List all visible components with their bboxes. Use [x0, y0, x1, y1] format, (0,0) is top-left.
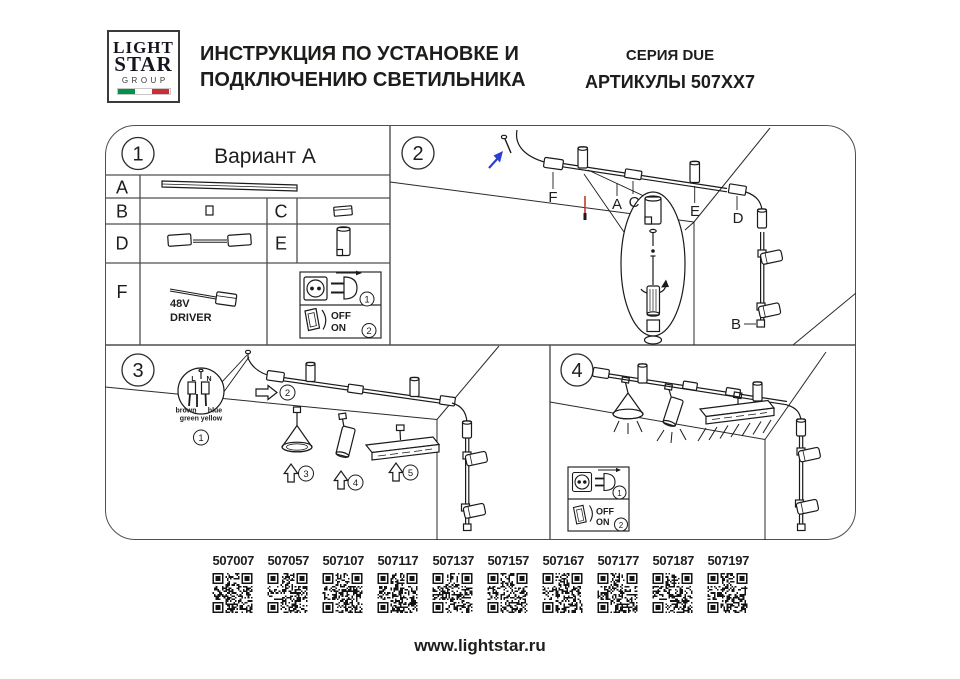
article-column: 507157: [488, 553, 528, 613]
qr-code: [378, 573, 418, 613]
title-line-1: ИНСТРУКЦИЯ ПО УСТАНОВКЕ И: [200, 41, 526, 67]
diagram-label-c: C: [628, 194, 639, 211]
part-label-e: E: [274, 233, 286, 253]
ceiling-hook: [245, 350, 250, 359]
article-number: 507167: [543, 553, 583, 568]
part-label-c: C: [274, 201, 287, 221]
driver-voltage: 48V: [170, 298, 190, 310]
ceiling-mount-1: [578, 146, 588, 167]
panel-3-wiring-diagram: 3: [105, 346, 499, 540]
article-number: 507117: [378, 553, 418, 568]
wire-label-blue: blue: [207, 407, 221, 414]
qr-code: [653, 573, 693, 613]
mid-connector: [624, 168, 642, 179]
website-url: www.lightstar.ru: [0, 636, 960, 656]
light-rays: [657, 429, 686, 443]
right-mount-cylinder: [757, 208, 766, 227]
instruction-sheet: LIGHT STAR GROUP ИНСТРУКЦИЯ ПО УСТАНОВКЕ…: [0, 0, 960, 679]
end-cap: [757, 320, 765, 327]
power-steps-box: 1 OFF ON 2: [300, 270, 381, 337]
article-column: 507167: [543, 553, 583, 613]
qr-code: [543, 573, 583, 613]
ceiling-mount-2: [753, 381, 762, 400]
track-bar-icon: [162, 181, 297, 191]
article-number: 507197: [708, 553, 748, 568]
panel-3-number: 3: [132, 360, 143, 382]
title-line-2: ПОДКЛЮЧЕНИЮ СВЕТИЛЬНИКА: [200, 67, 526, 93]
part-label-b: B: [115, 201, 127, 221]
switch-off-label: OFF: [596, 506, 614, 516]
step-3: 3: [303, 469, 308, 480]
page-title: ИНСТРУКЦИЯ ПО УСТАНОВКЕ И ПОДКЛЮЧЕНИЮ СВ…: [200, 41, 526, 93]
right-mount-cylinder: [462, 420, 471, 437]
panel-2-number: 2: [412, 143, 423, 165]
step-2: 2: [284, 388, 289, 399]
article-number: 507177: [598, 553, 638, 568]
panel-4-number: 4: [571, 360, 582, 382]
right-mount-cylinder: [796, 418, 805, 435]
pendant-fixture: [282, 407, 312, 452]
lightstar-logo: LIGHT STAR GROUP: [107, 30, 180, 103]
ceiling-mount-2: [690, 161, 700, 182]
mid-connector: [347, 384, 363, 394]
panel-1-parts-table: 1 Вариант А A B C D E F: [105, 137, 390, 345]
screwdriver-arrow-icon: [489, 151, 503, 168]
up-arrow-5: [389, 463, 403, 481]
panel-1-number: 1: [132, 143, 143, 165]
ceiling-mount-1: [306, 362, 315, 381]
part-label-d: D: [115, 233, 128, 253]
qr-code: [433, 573, 473, 613]
article-column: 507107: [323, 553, 363, 613]
diagram-art: 1 Вариант А A B C D E F: [105, 125, 856, 540]
pendant-fixture: [613, 376, 643, 433]
logo-text-group: GROUP: [109, 76, 178, 85]
feed-connector: [543, 157, 563, 170]
anchor-detail-callout: [621, 192, 685, 344]
qr-code: [213, 573, 253, 613]
wire-label-green-yellow: green yellow: [179, 415, 222, 422]
diagram-label-f: F: [548, 189, 557, 206]
article-column: 507197: [708, 553, 748, 613]
track-assembly: [489, 130, 783, 344]
logo-text-star: STAR: [109, 55, 178, 74]
article-number: 507007: [213, 553, 253, 568]
series-name: СЕРИЯ DUE: [545, 47, 795, 64]
feed-connector: [592, 367, 609, 378]
up-arrow-4: [334, 471, 348, 489]
qr-code: [268, 573, 308, 613]
end-cap-icon: [206, 206, 213, 215]
power-steps-box: 1 OFF ON 2: [568, 467, 629, 531]
ceiling-mount-1: [638, 363, 647, 382]
switch-off-label: OFF: [331, 311, 351, 322]
article-column: 507057: [268, 553, 308, 613]
end-cap: [463, 524, 471, 531]
step-plug: 1: [364, 294, 369, 305]
qr-code: [708, 573, 748, 613]
diagram-label-e: E: [689, 203, 699, 220]
article-number: 507057: [268, 553, 308, 568]
spot-fixture: [335, 413, 355, 458]
corner-connector: [439, 395, 455, 406]
diagram-figure: 1 Вариант А A B C D E F: [105, 125, 856, 540]
article-number: 507137: [433, 553, 473, 568]
track-assembly: [178, 350, 488, 530]
qr-code: [323, 573, 363, 613]
step-4: 4: [352, 478, 357, 489]
step-5: 5: [407, 468, 412, 479]
wire-label-brown: brown: [175, 407, 196, 414]
article-number: 507157: [488, 553, 528, 568]
mid-connector-1: [682, 380, 697, 390]
wire-label-n: N: [206, 376, 211, 383]
light-rays: [614, 421, 642, 434]
supply-wire: [516, 130, 545, 163]
article-column: 507187: [653, 553, 693, 613]
step-plug: 1: [617, 488, 622, 497]
series-articles: АРТИКУЛЫ 507ХХ7: [545, 72, 795, 93]
driver-label: DRIVER: [170, 312, 212, 324]
step-switch: 2: [618, 520, 623, 529]
corner-connector: [728, 183, 746, 195]
diagram-label-d: D: [732, 210, 743, 227]
screw-icon: [501, 135, 511, 153]
article-number: 507187: [653, 553, 693, 568]
qr-code: [598, 573, 638, 613]
article-number: 507107: [323, 553, 363, 568]
end-cap: [797, 524, 805, 531]
part-label-f: F: [116, 282, 127, 302]
part-label-a: A: [115, 177, 127, 197]
article-column: 507177: [598, 553, 638, 613]
diagram-label-a: A: [611, 196, 621, 213]
wire-label-l: L: [191, 376, 196, 383]
up-arrow-3: [284, 464, 298, 482]
ceiling-mount-2: [410, 377, 419, 396]
linear-fixture: [366, 425, 439, 460]
article-column: 507137: [433, 553, 473, 613]
step-1: 1: [198, 433, 203, 444]
article-column: 507117: [378, 553, 418, 613]
spot-fixture: [657, 383, 686, 442]
article-column: 507007: [213, 553, 253, 613]
series-block: СЕРИЯ DUE АРТИКУЛЫ 507ХХ7: [545, 47, 795, 93]
switch-on-label: ON: [331, 323, 346, 334]
joint-wire-icon: [167, 233, 251, 246]
switch-on-label: ON: [596, 517, 610, 527]
cylinder-mount-icon: [337, 226, 350, 255]
italian-flag-icon: [118, 89, 170, 94]
panel-2-mounting-diagram: 2: [390, 128, 856, 345]
qr-code: [488, 573, 528, 613]
diagram-label-b: B: [730, 316, 740, 333]
step-switch: 2: [366, 326, 371, 337]
feed-connector: [266, 370, 284, 382]
connector-icon: [333, 205, 352, 216]
panel-4-finished-diagram: 4: [550, 352, 826, 540]
slide-arrow-2: [256, 385, 277, 399]
article-qr-strip: 507007 507057 507107 507117 507137 50715…: [213, 553, 748, 613]
variant-title: Вариант А: [214, 145, 316, 168]
